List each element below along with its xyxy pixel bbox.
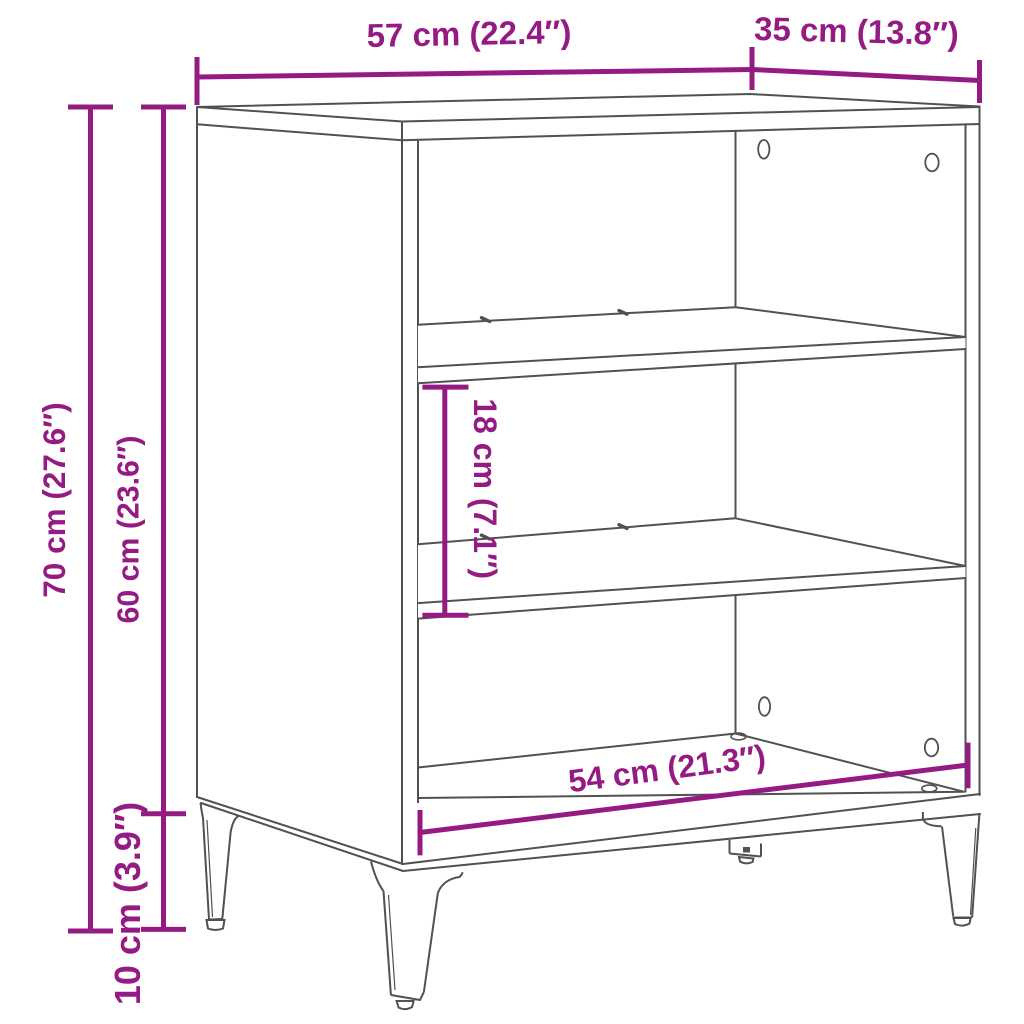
- svg-text:10 cm (3.9″): 10 cm (3.9″): [107, 802, 148, 1005]
- svg-text:35 cm (13.8″): 35 cm (13.8″): [754, 10, 960, 52]
- svg-text:70 cm (27.6″): 70 cm (27.6″): [36, 402, 72, 597]
- svg-text:57 cm (22.4″): 57 cm (22.4″): [366, 13, 571, 54]
- svg-text:60 cm (23.6″): 60 cm (23.6″): [113, 436, 146, 624]
- svg-text:18 cm (7.1″): 18 cm (7.1″): [467, 398, 503, 579]
